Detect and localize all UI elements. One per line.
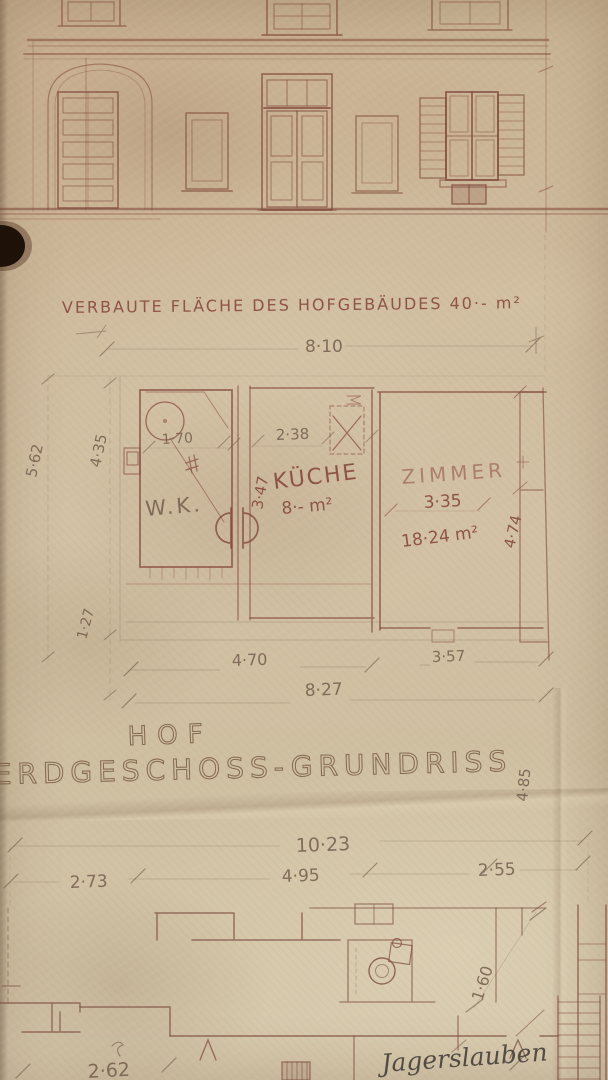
dim-label: 3·35 [423, 491, 462, 513]
dim-label: 2·38 [276, 425, 310, 444]
hof-floor-plan: 8·10 5·62 4·35 1·27 [22, 337, 553, 708]
dim-label: 2·73 [69, 872, 108, 893]
hof-label: HOF [127, 719, 213, 752]
dim-label: 4·85 [513, 767, 534, 802]
dim-label: 2·62 [87, 1059, 130, 1080]
room-label-wk: W.K. [144, 492, 203, 521]
dim-label: 8·27 [304, 680, 343, 701]
tick-mark [76, 325, 106, 338]
drawing-canvas: VERBAUTE FLÄCHE DES HOFGEBÄUDES 40·- m² … [0, 0, 608, 1080]
dim-label: 1·70 [161, 430, 193, 448]
dim-label: 1·60 [468, 963, 497, 1003]
dim-label: 8·10 [305, 337, 343, 357]
cellar-window [452, 185, 486, 204]
handwritten-note: Jagerslauben [375, 1037, 548, 1078]
ground-floor-window [352, 116, 402, 193]
dim-label: 5·62 [22, 442, 47, 478]
dim-label: 3·57 [432, 647, 466, 666]
toilet-symbol [369, 939, 412, 985]
ground-floor-plan: 10·23 2·73 4·95 2·55 [0, 831, 606, 1080]
hatch-mark [186, 455, 198, 473]
punch-hole [0, 221, 32, 271]
room-area-kueche: 8·- m² [281, 495, 334, 519]
room-label-zimmer: ZIMMER [401, 458, 507, 489]
stair-arrow [200, 1040, 216, 1060]
stove-symbol [282, 1062, 310, 1080]
upper-floor-window [428, 0, 512, 30]
tick-mark [513, 456, 529, 494]
ground-floor-window [182, 113, 232, 191]
dim-label: 10·23 [295, 833, 350, 857]
double-entry-door [258, 74, 336, 210]
dim-label: 4·95 [281, 866, 320, 887]
plan-note: VERBAUTE FLÄCHE DES HOFGEBÄUDES 40·- m² [62, 293, 544, 354]
door-swing [216, 508, 258, 548]
blueprint-sheet: VERBAUTE FLÄCHE DES HOFGEBÄUDES 40·- m² … [0, 0, 608, 1080]
room-label-kueche: KÜCHE [272, 459, 360, 495]
upper-floor-window [58, 0, 126, 26]
dim-label: 1·27 [74, 607, 98, 641]
dim-label: 4·74 [500, 513, 525, 550]
tick-mark [529, 327, 544, 354]
shuttered-window [420, 92, 524, 187]
plan-caption: ERDGESCHOSS-GRUNDRISS [0, 745, 513, 792]
door-swing [516, 1010, 544, 1036]
staircase [558, 996, 600, 1080]
room-area-zimmer: 18·24 m² [400, 523, 479, 552]
dimension-kueche-width [252, 430, 378, 447]
dim-label: 3·47 [248, 475, 272, 511]
verbaute-flaeche-title: VERBAUTE FLÄCHE DES HOFGEBÄUDES 40·- m² [62, 293, 522, 317]
dim-label: 2·55 [477, 860, 516, 881]
arched-doorway [48, 64, 152, 210]
wall-hatch [126, 567, 372, 584]
dim-label: 4·35 [86, 432, 111, 468]
dim-label: 4·70 [231, 650, 267, 670]
cornice-band [24, 40, 550, 59]
upper-floor-window [262, 0, 342, 35]
